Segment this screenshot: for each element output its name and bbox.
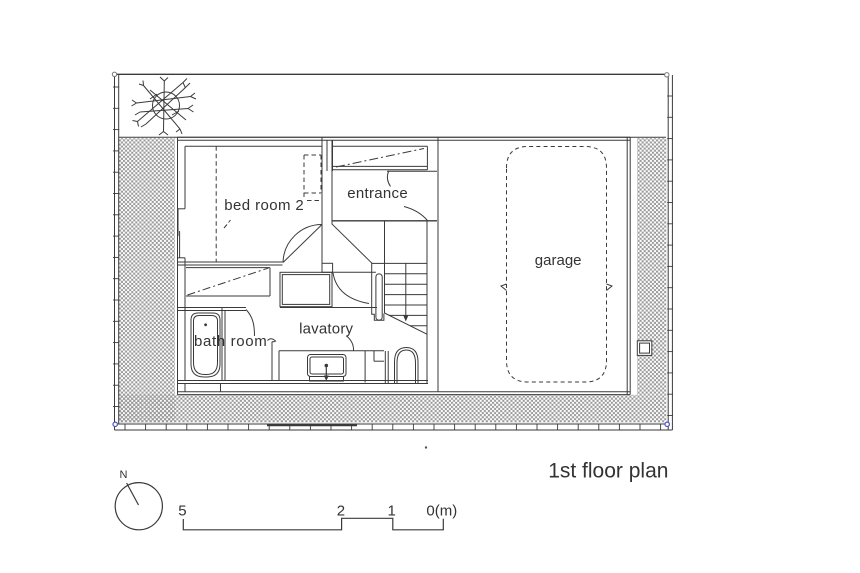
svg-text:bath room: bath room: [194, 333, 267, 350]
svg-text:5: 5: [178, 502, 186, 519]
svg-text:entrance: entrance: [347, 185, 408, 202]
svg-text:1: 1: [388, 502, 396, 519]
svg-text:garage: garage: [535, 252, 582, 269]
svg-text:1st floor plan: 1st floor plan: [548, 460, 668, 483]
svg-text:N: N: [120, 469, 128, 481]
svg-text:bed room 2: bed room 2: [224, 197, 304, 214]
svg-text:0(m): 0(m): [426, 503, 457, 520]
svg-text:lavatory: lavatory: [299, 321, 353, 338]
svg-text:2: 2: [337, 502, 345, 519]
